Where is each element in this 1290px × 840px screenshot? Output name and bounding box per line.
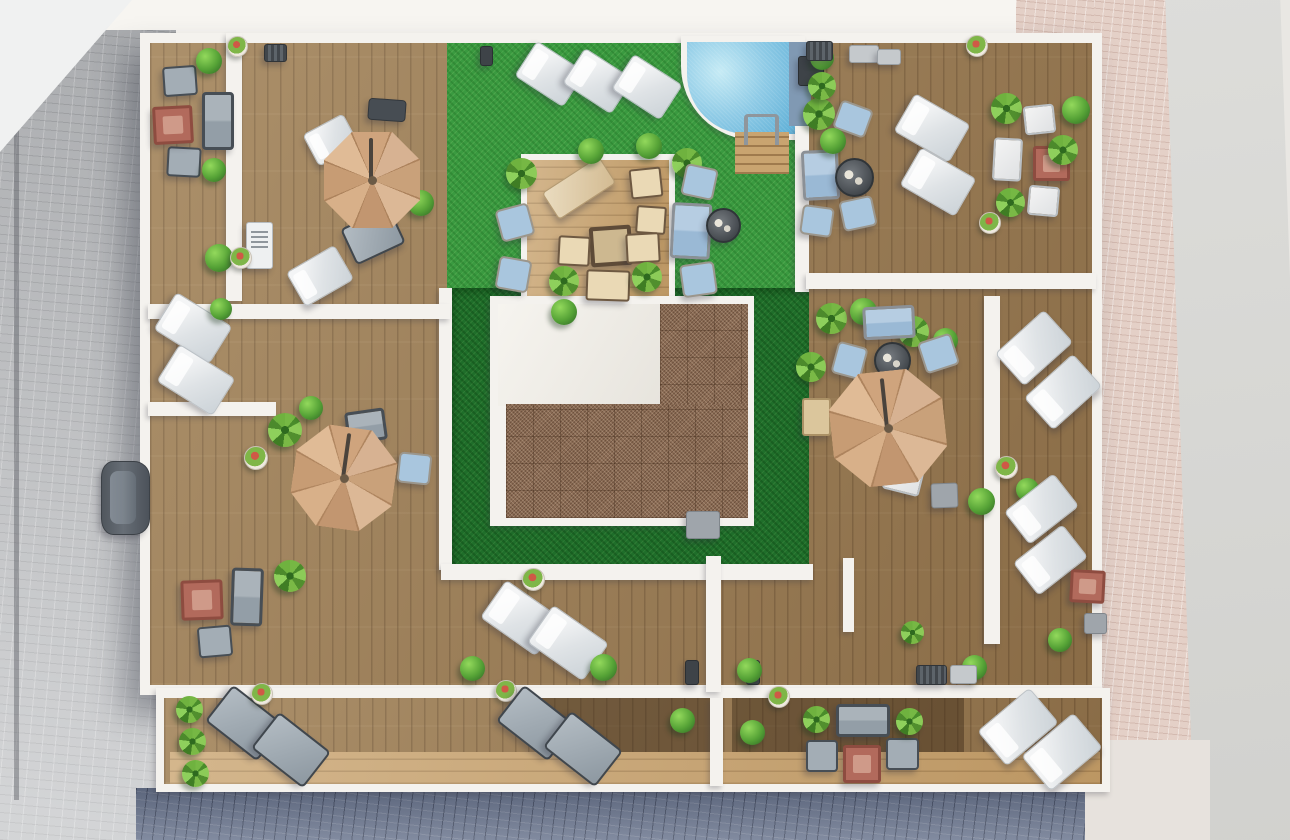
ac-unit-grey xyxy=(849,45,879,63)
coffee-table-terracotta xyxy=(152,105,194,145)
wall-lawn-left xyxy=(439,288,452,570)
divider-wall-5 xyxy=(806,273,1096,289)
coffee-table-terracotta xyxy=(843,745,881,783)
palm-plant xyxy=(796,352,826,382)
street-bottom xyxy=(136,788,1104,840)
armchair-blue xyxy=(680,163,719,201)
ac-vent-dark xyxy=(264,44,287,62)
divider-wall-7 xyxy=(706,556,721,692)
planter-dark xyxy=(685,660,699,685)
armchair-blue xyxy=(396,451,432,485)
core-gravel-upper xyxy=(660,304,748,412)
flower-pot xyxy=(979,212,1001,234)
shrub-plant xyxy=(820,128,846,154)
palm-plant xyxy=(632,262,662,292)
shrub-plant xyxy=(210,298,232,320)
armchair-blue xyxy=(679,261,718,299)
palm-plant xyxy=(176,696,203,723)
core-gravel-lower xyxy=(506,404,748,518)
parked-car xyxy=(101,461,150,535)
outdoor-sofa-grey xyxy=(202,92,234,150)
flower-pot xyxy=(244,446,268,470)
coffee-table-terracotta xyxy=(180,579,223,620)
armchair-blue xyxy=(799,204,835,238)
wall-lawn-bottom xyxy=(441,564,813,580)
coffee-table-terracotta xyxy=(1069,569,1106,604)
armchair-white xyxy=(1027,185,1060,218)
planter-dark xyxy=(480,46,493,66)
seat-beige xyxy=(635,205,667,235)
shrub-plant xyxy=(737,658,762,683)
ac-vent-dark xyxy=(806,41,833,61)
flower-pot xyxy=(227,36,248,57)
seat-white xyxy=(992,137,1023,181)
seat-beige xyxy=(625,232,661,264)
ac-unit-grey xyxy=(877,49,901,65)
armchair-grey xyxy=(166,146,202,178)
palm-plant xyxy=(808,72,836,100)
flower-pot xyxy=(522,568,545,591)
shrub-plant xyxy=(299,396,323,420)
round-table-dark xyxy=(835,158,874,197)
armchair-white xyxy=(1023,103,1057,135)
palm-plant xyxy=(274,560,306,592)
shrub-plant xyxy=(740,720,765,745)
rooftop-aerial-render xyxy=(0,0,1290,840)
seat-beige xyxy=(585,269,630,302)
palm-plant xyxy=(901,621,924,644)
shrub-plant xyxy=(460,656,485,681)
pool-ladder xyxy=(744,114,779,145)
shrub-plant xyxy=(202,158,226,182)
shrub-plant xyxy=(1048,628,1072,652)
flower-pot xyxy=(995,456,1018,479)
palm-plant xyxy=(179,728,206,755)
outdoor-sofa-blue xyxy=(862,305,916,341)
outdoor-sofa-grey xyxy=(230,567,264,626)
utility-box-grey xyxy=(686,511,720,539)
utility-box-grey xyxy=(1084,613,1107,634)
round-table-dark xyxy=(706,208,741,243)
outdoor-sofa-grey xyxy=(836,704,890,737)
seat-beige xyxy=(629,166,664,199)
palm-plant xyxy=(549,266,579,296)
flower-pot xyxy=(768,686,790,708)
flower-pot xyxy=(966,35,988,57)
palm-plant xyxy=(182,760,209,787)
shrub-plant xyxy=(551,299,577,325)
flower-pot xyxy=(251,683,273,705)
ac-vent-dark xyxy=(916,665,947,685)
shrub-plant xyxy=(670,708,695,733)
armchair-blue xyxy=(494,255,532,293)
shrub-plant xyxy=(196,48,222,74)
parasol-umbrella xyxy=(324,132,420,228)
palm-plant xyxy=(803,706,830,733)
core-roof-white xyxy=(498,304,660,406)
armchair-grey xyxy=(162,65,198,97)
palm-plant xyxy=(803,98,835,130)
flower-pot xyxy=(230,247,252,269)
ac-unit-grey xyxy=(950,665,977,684)
street-left-curb xyxy=(14,30,19,800)
side-table-beige xyxy=(802,398,831,436)
shrub-plant xyxy=(636,133,662,159)
armchair-grey xyxy=(197,625,234,659)
palm-plant xyxy=(816,303,847,334)
shrub-plant xyxy=(578,138,604,164)
shrub-plant xyxy=(205,244,233,272)
palm-plant xyxy=(268,413,302,447)
armchair-grey xyxy=(806,740,838,772)
shrub-plant xyxy=(1062,96,1090,124)
shrub-plant xyxy=(968,488,995,515)
palm-plant xyxy=(1048,135,1078,165)
shrub-plant xyxy=(590,654,617,681)
palm-plant xyxy=(896,708,923,735)
divider-wall-9 xyxy=(843,558,854,632)
palm-plant xyxy=(996,188,1025,217)
divider-wall-8 xyxy=(710,698,723,786)
armchair-grey xyxy=(886,738,919,770)
seat-beige xyxy=(557,235,591,267)
palm-plant xyxy=(991,93,1022,124)
utility-box-grey xyxy=(931,483,959,509)
bench-dark xyxy=(367,98,406,123)
palm-plant xyxy=(506,158,537,189)
